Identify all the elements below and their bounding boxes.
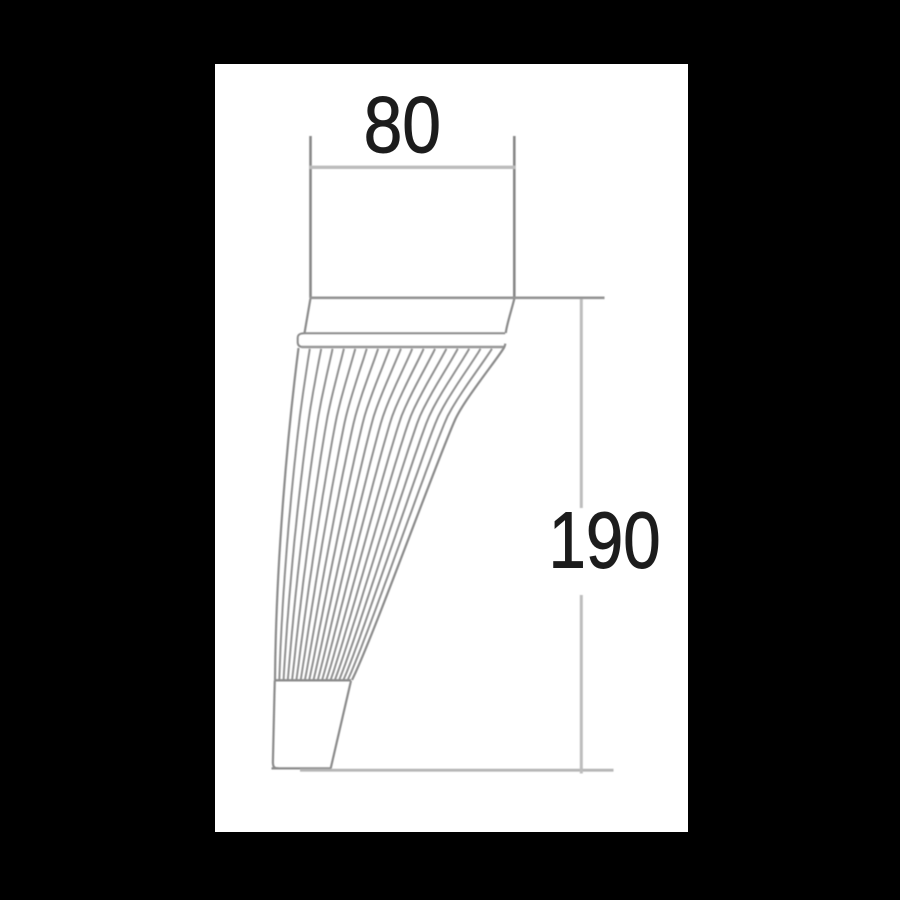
- svg-text:190: 190: [549, 495, 661, 585]
- svg-text:80: 80: [364, 80, 441, 170]
